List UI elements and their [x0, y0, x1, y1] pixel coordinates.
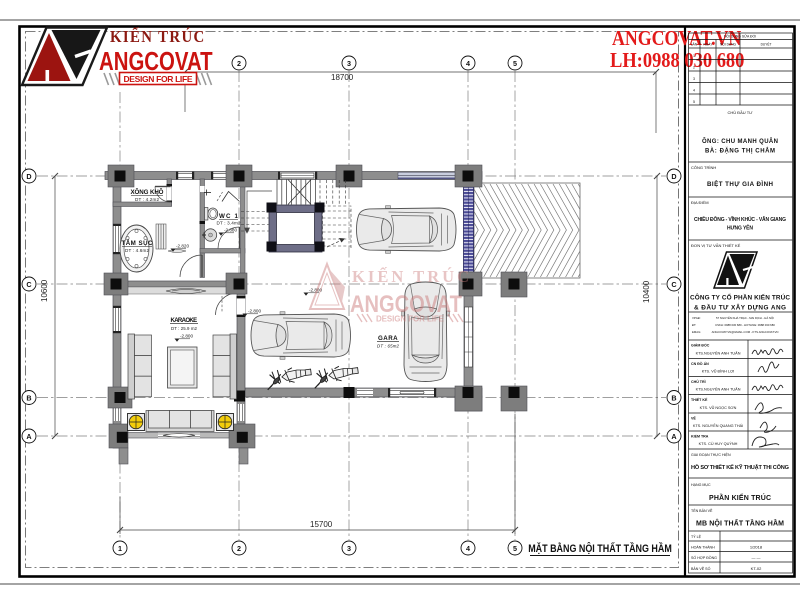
svg-text:DUYỆT: DUYỆT — [761, 42, 772, 47]
svg-text:HỒ SƠ THIẾT KẾ KỸ THUẬT THI CÔ: HỒ SƠ THIẾT KẾ KỸ THUẬT THI CÔNG — [691, 463, 789, 471]
svg-text:DESIGN FOR LIFE: DESIGN FOR LIFE — [124, 74, 193, 84]
svg-text:DT : 4.6m2: DT : 4.6m2 — [125, 248, 149, 253]
svg-text:ANGCOVAT: ANGCOVAT — [350, 290, 462, 317]
svg-text:3: 3 — [347, 544, 351, 553]
svg-text:DESIGN FOR LIFE: DESIGN FOR LIFE — [376, 315, 445, 324]
svg-text:LH:0988 030 680: LH:0988 030 680 — [610, 49, 745, 72]
svg-text:A: A — [671, 432, 676, 441]
svg-text:TỶ LỆ: TỶ LỆ — [691, 534, 702, 539]
svg-text:KTS. VŨ NGỌC SƠN: KTS. VŨ NGỌC SƠN — [700, 405, 737, 410]
svg-text:2: 2 — [237, 59, 241, 68]
svg-text:57 NGUYỄN KHẢ TRẠC - MAI DỊCH: 57 NGUYỄN KHẢ TRẠC - MAI DỊCH - HÀ NỘI — [716, 315, 774, 320]
svg-text:D: D — [26, 172, 31, 181]
svg-text:WC 1: WC 1 — [219, 213, 239, 220]
svg-text:LẦN: LẦN — [691, 43, 698, 47]
svg-text:KTS. NGUYỄN QUANG THÁI: KTS. NGUYỄN QUANG THÁI — [693, 423, 743, 428]
svg-text:10600: 10600 — [40, 279, 49, 302]
svg-text:DT : 65m2: DT : 65m2 — [377, 344, 400, 349]
svg-text:C: C — [26, 280, 31, 289]
svg-text:ĐỊA ĐIỂM: ĐỊA ĐIỂM — [691, 200, 709, 205]
svg-text:ANGCOVAT.VN@GMAIL.COM - KTS.AN: ANGCOVAT.VN@GMAIL.COM - KTS.ANGCOVAT.VN — [712, 330, 779, 334]
svg-text:VẼ: VẼ — [691, 416, 696, 421]
svg-text:ĐƠN VỊ TƯ VẤN THIẾT KẾ: ĐƠN VỊ TƯ VẤN THIẾT KẾ — [691, 243, 741, 248]
svg-text:GARA: GARA — [378, 335, 398, 342]
svg-text:B: B — [26, 394, 31, 403]
svg-text:CN ĐỒ ÁN: CN ĐỒ ÁN — [691, 361, 709, 366]
svg-text:BẢN VẼ SỐ: BẢN VẼ SỐ — [691, 566, 711, 571]
svg-text:2: 2 — [237, 544, 241, 553]
svg-text:-2.820: -2.820 — [176, 244, 189, 249]
svg-text:GIAI ĐOẠN THỰC HIỆN: GIAI ĐOẠN THỰC HIỆN — [691, 452, 731, 457]
svg-text:ĐT:: ĐT: — [692, 323, 696, 327]
svg-text:1/2018: 1/2018 — [750, 545, 763, 550]
svg-text:XÔNG KHÔ: XÔNG KHÔ — [131, 188, 164, 196]
svg-text:KTS.NGUYỄN ANH TUẤN: KTS.NGUYỄN ANH TUẤN — [696, 387, 741, 392]
svg-text:EMAIL:: EMAIL: — [692, 330, 701, 334]
svg-text:3: 3 — [347, 59, 351, 68]
svg-text:DT : 25.9 m2: DT : 25.9 m2 — [171, 326, 198, 331]
svg-text:CHỦ ĐẦU TƯ: CHỦ ĐẦU TƯ — [727, 110, 753, 115]
svg-text:B: B — [671, 394, 676, 403]
svg-text:ANGCOVAT.VN: ANGCOVAT.VN — [612, 28, 741, 51]
svg-text:15700: 15700 — [310, 520, 333, 529]
svg-text:DT : 4.2m2: DT : 4.2m2 — [135, 197, 159, 202]
svg-text:CHỦ TRÌ: CHỦ TRÌ — [691, 379, 706, 384]
svg-text:A: A — [26, 432, 31, 441]
svg-text:-2.800: -2.800 — [180, 334, 193, 339]
svg-text:CÔNG TRÌNH: CÔNG TRÌNH — [691, 165, 716, 170]
svg-text:DT : 3.4m2: DT : 3.4m2 — [217, 221, 241, 226]
svg-text:4: 4 — [466, 544, 470, 553]
svg-text:5: 5 — [513, 544, 517, 553]
svg-text:10400: 10400 — [642, 280, 651, 303]
svg-text:CSKH: 0988 030 680 - HOTLINE:: CSKH: 0988 030 680 - HOTLINE: 0988 030 6… — [715, 323, 775, 327]
svg-text:HOÀN THÀNH: HOÀN THÀNH — [691, 546, 715, 550]
svg-text:KT-02: KT-02 — [751, 566, 762, 571]
svg-text:KIỂM TRA: KIỂM TRA — [691, 434, 709, 439]
svg-text:5: 5 — [693, 100, 695, 104]
svg-text:KTS.NGUYỄN ANH TUẤN: KTS.NGUYỄN ANH TUẤN — [696, 351, 741, 356]
svg-text:CHIỀU ĐÔNG - VĨNH KHÚC - VĂN G: CHIỀU ĐÔNG - VĨNH KHÚC - VĂN GIANG — [694, 215, 786, 223]
svg-text:KTS. CÙ HUY QUỲNH: KTS. CÙ HUY QUỲNH — [699, 441, 738, 446]
svg-text:1: 1 — [118, 544, 122, 553]
svg-text:THIẾT KẾ: THIẾT KẾ — [691, 397, 708, 402]
svg-text:KIẾN TRÚC: KIẾN TRÚC — [110, 26, 206, 46]
svg-text:3: 3 — [693, 77, 695, 81]
svg-text:4: 4 — [693, 89, 695, 93]
svg-text:5: 5 — [513, 59, 517, 68]
svg-text:KTS. VŨ ĐÌNH LỢI: KTS. VŨ ĐÌNH LỢI — [702, 369, 735, 374]
svg-text:VPGĐ:: VPGĐ: — [692, 316, 701, 320]
svg-text:HƯNG YÊN: HƯNG YÊN — [727, 224, 753, 232]
svg-text:MẶT BẰNG NỘI THẤT TẦNG HẦM: MẶT BẰNG NỘI THẤT TẦNG HẦM — [528, 541, 672, 555]
svg-text:— —: — — — [751, 555, 760, 560]
svg-text:18700: 18700 — [331, 73, 354, 82]
svg-text:D: D — [671, 172, 676, 181]
svg-text:GIÁM ĐỐC: GIÁM ĐỐC — [691, 343, 710, 348]
svg-text:4: 4 — [466, 59, 470, 68]
svg-text:NỘI DUNG: NỘI DUNG — [720, 42, 736, 47]
svg-text:2: 2 — [693, 66, 695, 70]
svg-text:C: C — [671, 280, 676, 289]
svg-text:ÔNG: CHU MANH QUÂN: ÔNG: CHU MANH QUÂN — [702, 137, 778, 145]
svg-text:1: 1 — [693, 54, 695, 58]
svg-text:-2.880: -2.880 — [224, 228, 237, 233]
svg-text:SỐ HỢP ĐỒNG: SỐ HỢP ĐỒNG — [691, 555, 717, 560]
svg-text:TẮM SỤC: TẮM SỤC — [122, 239, 154, 247]
svg-text:TÊN BẢN VẼ: TÊN BẢN VẼ — [691, 508, 713, 513]
svg-text:BÀ: ĐẶNG THỊ CHẮM: BÀ: ĐẶNG THỊ CHẮM — [705, 147, 775, 155]
svg-text:-2.800: -2.800 — [248, 309, 261, 314]
svg-text:NỘI DUNG SỬA ĐỔI: NỘI DUNG SỬA ĐỔI — [724, 34, 756, 39]
svg-text:NGÀY: NGÀY — [703, 43, 713, 47]
svg-text:KARAOKE: KARAOKE — [171, 318, 198, 324]
svg-text:ANGCOVAT: ANGCOVAT — [99, 47, 213, 76]
svg-text:HẠNG MỤC: HẠNG MỤC — [691, 483, 711, 487]
svg-text:BIỆT THỰ GIA ĐÌNH: BIỆT THỰ GIA ĐÌNH — [707, 180, 774, 188]
